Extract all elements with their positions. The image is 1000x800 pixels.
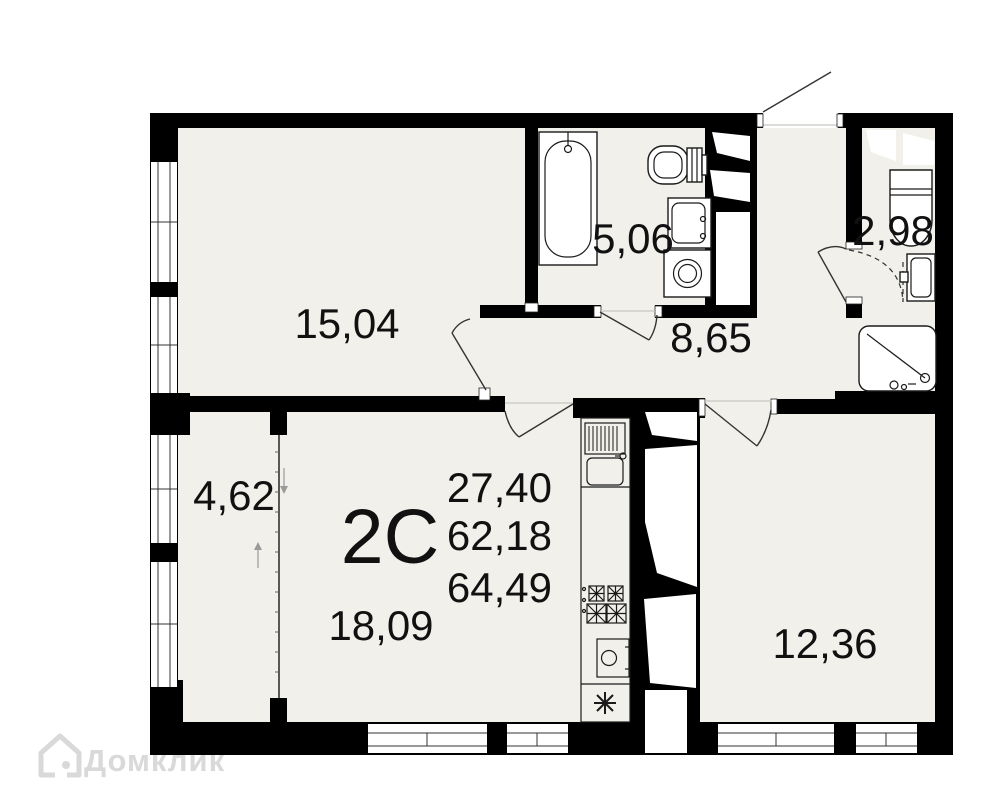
shower-tray-icon [859,326,936,391]
hallway-area-label: 8,65 [670,314,752,361]
bathtub-icon [539,132,597,265]
bathroom-sink-icon [668,198,711,248]
vent-star-icon [594,692,616,714]
window [856,724,917,753]
wall-niche [645,690,687,753]
window [368,724,487,753]
window [151,297,177,393]
toilet-icon [648,146,707,184]
area-summary-line-3: 64,49 [447,564,552,611]
window [507,724,568,753]
floor-plan: 15,04 5,06 8,65 2,98 4,62 18,09 12,36 2С… [0,0,1000,800]
floor-plan-page: 15,04 5,06 8,65 2,98 4,62 18,09 12,36 2С… [0,0,1000,800]
plan-type-label: 2С [341,494,439,580]
balcony-area-label: 4,62 [193,472,275,519]
bathroom-area-label: 5,06 [592,215,674,262]
watermark-brand-text: Домклик [84,743,225,778]
shower-room-area-label: 2,98 [852,207,934,254]
window [151,562,177,687]
living-kitchen-area-label: 18,09 [328,602,433,649]
bedroom-area-label: 12,36 [772,620,877,667]
window [151,162,177,282]
area-summary-line-1: 27,40 [447,464,552,511]
window [151,435,177,543]
window [718,724,834,753]
area-summary-line-2: 62,18 [447,512,552,559]
room-15-area-label: 15,04 [294,300,399,347]
